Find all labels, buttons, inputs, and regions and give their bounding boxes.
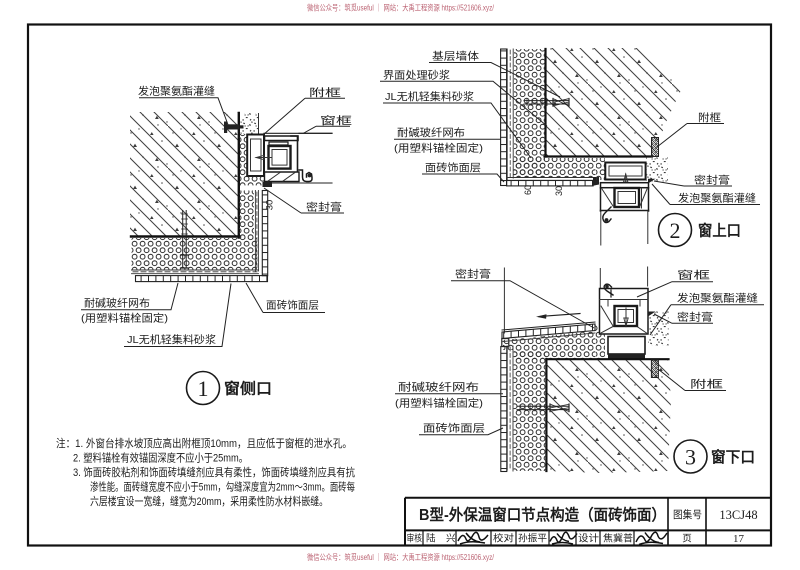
svg-text:校对: 校对 bbox=[493, 533, 515, 545]
svg-text:窗上口: 窗上口 bbox=[698, 222, 741, 240]
svg-text:附框: 附框 bbox=[309, 86, 342, 99]
svg-text:B型-外保温窗口节点构造（面砖饰面）: B型-外保温窗口节点构造（面砖饰面） bbox=[419, 505, 666, 524]
svg-text:渗性能。面砖缝宽度不应小于5mm，勾缝深度宜为2mm～3mm: 渗性能。面砖缝宽度不应小于5mm，勾缝深度宜为2mm～3mm。面砖每 bbox=[90, 480, 355, 494]
svg-text:发泡聚氨酯灌缝: 发泡聚氨酯灌缝 bbox=[678, 192, 757, 205]
svg-text:注：1. 外窗台排水坡顶应高出附框顶10mm，且应低于窗框的: 注：1. 外窗台排水坡顶应高出附框顶10mm，且应低于窗框的泄水孔。 bbox=[56, 436, 352, 450]
svg-text:1: 1 bbox=[198, 376, 209, 401]
svg-text:微信公众号：筑觅useful ｜ 网站：大禹工程资源 htt: 微信公众号：筑觅useful ｜ 网站：大禹工程资源 https://52160… bbox=[307, 3, 495, 13]
svg-text:(用塑料锚栓固定): (用塑料锚栓固定) bbox=[394, 142, 483, 155]
svg-text:焦冀普: 焦冀普 bbox=[603, 533, 634, 545]
svg-text:面砖饰面层: 面砖饰面层 bbox=[425, 161, 481, 174]
svg-text:窗下口: 窗下口 bbox=[711, 448, 755, 466]
svg-text:密封膏: 密封膏 bbox=[455, 268, 491, 281]
svg-text:JL无机轻集料砂浆: JL无机轻集料砂浆 bbox=[385, 90, 475, 103]
svg-text:审核: 审核 bbox=[407, 533, 423, 545]
svg-text:兴: 兴 bbox=[446, 534, 456, 545]
svg-text:密封膏: 密封膏 bbox=[677, 311, 713, 324]
svg-text:窗侧口: 窗侧口 bbox=[224, 380, 272, 398]
svg-text:密封膏: 密封膏 bbox=[306, 201, 342, 214]
svg-text:17: 17 bbox=[733, 533, 745, 545]
svg-text:2: 2 bbox=[670, 218, 681, 243]
svg-text:发泡聚氨酯灌缝: 发泡聚氨酯灌缝 bbox=[677, 292, 759, 305]
svg-text:附框: 附框 bbox=[690, 378, 724, 391]
svg-text:(用塑料锚栓固定): (用塑料锚栓固定) bbox=[395, 397, 483, 410]
svg-text:图集号: 图集号 bbox=[673, 508, 702, 521]
svg-text:面砖饰面层: 面砖饰面层 bbox=[423, 422, 485, 435]
svg-text:发泡聚氨酯灌缝: 发泡聚氨酯灌缝 bbox=[138, 85, 216, 98]
svg-text:密封膏: 密封膏 bbox=[694, 174, 730, 187]
svg-text:设计: 设计 bbox=[578, 533, 600, 545]
svg-text:JL无机轻集料砂浆: JL无机轻集料砂浆 bbox=[127, 333, 217, 346]
svg-text:3. 饰面砖胶粘剂和饰面砖填缝剂应具有柔性，饰面砖填缝剂应具: 3. 饰面砖胶粘剂和饰面砖填缝剂应具有柔性，饰面砖填缝剂应具有抗 bbox=[73, 465, 355, 479]
svg-text:2. 塑料锚栓有效锚固深度不应小于25mm。: 2. 塑料锚栓有效锚固深度不应小于25mm。 bbox=[73, 451, 248, 465]
svg-text:窗框: 窗框 bbox=[320, 114, 353, 127]
svg-text:孙振平: 孙振平 bbox=[518, 533, 547, 545]
svg-text:面砖饰面层: 面砖饰面层 bbox=[266, 299, 319, 312]
svg-text:微信公众号：筑觅useful ｜ 网站：大禹工程资源 htt: 微信公众号：筑觅useful ｜ 网站：大禹工程资源 https://52160… bbox=[307, 552, 495, 562]
svg-text:窗框: 窗框 bbox=[677, 269, 711, 282]
svg-text:六层楼宜设一宽缝，缝宽为20mm，采用柔性防水材料嵌缝。: 六层楼宜设一宽缝，缝宽为20mm，采用柔性防水材料嵌缝。 bbox=[90, 494, 328, 508]
svg-text:(用塑料锚栓固定): (用塑料锚栓固定) bbox=[81, 312, 168, 325]
svg-text:页: 页 bbox=[682, 534, 692, 545]
svg-text:基层墙体: 基层墙体 bbox=[432, 50, 480, 63]
svg-text:界面处理砂浆: 界面处理砂浆 bbox=[383, 69, 451, 82]
svg-text:耐碱玻纤网布: 耐碱玻纤网布 bbox=[398, 381, 479, 394]
svg-text:陆: 陆 bbox=[426, 533, 436, 545]
svg-text:30: 30 bbox=[554, 186, 564, 196]
svg-text:30: 30 bbox=[265, 200, 276, 211]
svg-text:3: 3 bbox=[685, 445, 696, 470]
svg-text:耐碱玻纤网布: 耐碱玻纤网布 bbox=[84, 297, 150, 310]
svg-text:13CJ48: 13CJ48 bbox=[719, 508, 757, 522]
svg-text:60: 60 bbox=[523, 185, 533, 195]
svg-text:耐碱玻纤网布: 耐碱玻纤网布 bbox=[397, 126, 465, 139]
svg-text:附框: 附框 bbox=[698, 111, 722, 124]
